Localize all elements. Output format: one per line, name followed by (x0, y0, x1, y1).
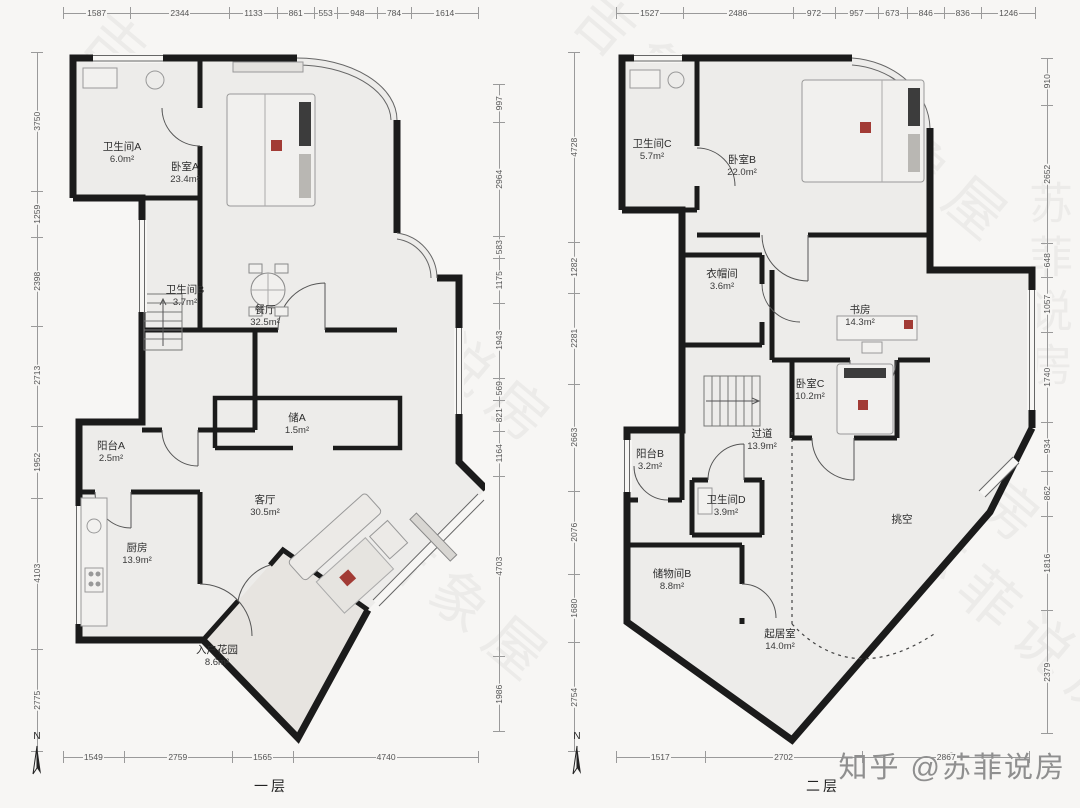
dimension-segment: 1175 (492, 258, 506, 303)
room-name: 阳台B (636, 448, 664, 461)
room-label: 卫生间D 3.9m² (706, 494, 745, 518)
floor-plan-page: 吉象屋苏菲说房吉象屋苏菲说房吉象屋苏菲说房吉象屋苏菲说房 苏菲说房 158723… (0, 0, 1080, 808)
dimension-segment: 4728 (567, 52, 581, 242)
room-area: 8.6m² (196, 657, 238, 668)
dimension-segment: 972 (793, 6, 836, 20)
dimension-segment: 1943 (492, 303, 506, 377)
furniture-bed-C (837, 364, 893, 434)
room-name: 卧室C (795, 378, 825, 391)
dimension-segment: 673 (878, 6, 908, 20)
room-name: 入户花园 (196, 644, 238, 657)
room-area: 6.0m² (103, 154, 142, 165)
dimension-segment: 4740 (293, 750, 479, 764)
room-label: 入户花园 8.6m² (196, 644, 238, 668)
room-name: 厨房 (122, 542, 152, 555)
room-name: 衣帽间 (706, 268, 738, 281)
dimension-segment: 3750 (30, 52, 44, 191)
furniture-bed-B (802, 80, 924, 182)
dimension-segment: 2486 (683, 6, 792, 20)
room-label: 储A 1.5m² (285, 412, 309, 436)
room-name: 储物间B (653, 568, 692, 581)
dimension-segment: 1680 (567, 574, 581, 641)
room-label: 阳台B 3.2m² (636, 448, 664, 472)
dimension-segment: 861 (277, 6, 313, 20)
north-arrow-right: N (568, 732, 586, 778)
dimension-segment: 2398 (30, 237, 44, 326)
room-label: 衣帽间 3.6m² (706, 268, 738, 292)
room-name: 阳台A (97, 440, 125, 453)
room-name: 挑空 (892, 514, 913, 527)
room-area: 13.9m² (747, 441, 777, 452)
dimension-segment: 910 (1040, 58, 1054, 105)
room-name: 卫生间B (166, 284, 205, 297)
room-name: 卧室A (170, 161, 200, 174)
dimension-segment: 2663 (567, 384, 581, 491)
dimension-segment: 2076 (567, 491, 581, 574)
dimension-segment: 4703 (492, 476, 506, 656)
floor-plan-first-floor-drawing (65, 28, 485, 746)
dimension-segment: 1246 (981, 6, 1036, 20)
room-area: 3.7m² (166, 297, 205, 308)
dimension-segment: 648 (1040, 243, 1054, 277)
dimension-segment: 1565 (232, 750, 293, 764)
dim-chain-left-bottom: 1549275915654740 (63, 750, 479, 764)
room-area: 32.5m² (250, 317, 280, 328)
room-area: 14.0m² (764, 641, 796, 652)
dimension-segment: 2281 (567, 293, 581, 384)
north-label: N (573, 731, 580, 742)
dimension-segment: 821 (492, 400, 506, 431)
north-arrow-icon (31, 744, 43, 778)
dimension-segment: 846 (907, 6, 944, 20)
room-area: 3.9m² (706, 507, 745, 518)
room-label: 储物间B 8.8m² (653, 568, 692, 592)
dimension-segment: 2379 (1040, 610, 1054, 734)
room-area: 8.8m² (653, 581, 692, 592)
room-name: 卫生间D (706, 494, 745, 507)
dimension-segment: 934 (1040, 422, 1054, 471)
dimension-segment: 583 (492, 236, 506, 258)
room-area: 5.7m² (632, 151, 671, 162)
room-label: 卧室C 10.2m² (795, 378, 825, 402)
dimension-segment: 1259 (30, 191, 44, 238)
room-name: 卫生间C (632, 138, 671, 151)
dimension-segment: 1986 (492, 656, 506, 732)
dimension-segment: 2713 (30, 326, 44, 426)
dimension-segment: 1614 (411, 6, 479, 20)
room-area: 3.2m² (636, 461, 664, 472)
room-area: 23.4m² (170, 174, 200, 185)
dimension-segment: 1057 (1040, 277, 1054, 332)
dim-chain-right-right: 91026526481057174093486218162379 (1040, 58, 1054, 734)
dimension-segment: 1740 (1040, 332, 1054, 423)
dimension-segment: 2759 (124, 750, 232, 764)
room-area: 1.5m² (285, 425, 309, 436)
dimension-segment: 4103 (30, 498, 44, 650)
room-label: 挑空 (892, 514, 913, 527)
room-area: 22.0m² (727, 167, 757, 178)
dimension-segment: 997 (492, 84, 506, 122)
zhihu-credit-watermark: 知乎 @苏菲说房 (839, 744, 1067, 786)
dimension-segment: 2964 (492, 122, 506, 236)
north-label: N (33, 731, 40, 742)
dimension-segment: 553 (314, 6, 337, 20)
floor-plan-second-floor-drawing (612, 28, 1040, 746)
room-label: 书房 14.3m² (845, 304, 875, 328)
dimension-segment: 569 (492, 378, 506, 400)
furniture-kitchen-counter (81, 498, 107, 626)
room-name: 客厅 (250, 494, 280, 507)
dim-chain-left-right: 997296458311751943569821116447031986 (492, 84, 506, 732)
dimension-segment: 2344 (130, 6, 229, 20)
dimension-segment: 1587 (63, 6, 130, 20)
room-area: 14.3m² (845, 317, 875, 328)
room-label: 过道 13.9m² (747, 428, 777, 452)
room-label: 厨房 13.9m² (122, 542, 152, 566)
room-name: 卧室B (727, 154, 757, 167)
dimension-segment: 1282 (567, 242, 581, 293)
room-name: 起居室 (764, 628, 796, 641)
room-name: 书房 (845, 304, 875, 317)
room-area: 10.2m² (795, 391, 825, 402)
dimension-segment: 836 (944, 6, 981, 20)
dim-chain-right-left: 4728128222812663207616802754 (567, 52, 581, 752)
dimension-segment: 948 (337, 6, 377, 20)
dimension-segment: 2652 (1040, 105, 1054, 243)
room-area: 13.9m² (122, 555, 152, 566)
first-floor-title: 一层 (63, 776, 479, 796)
dimension-segment: 1517 (616, 750, 705, 764)
room-label: 客厅 30.5m² (250, 494, 280, 518)
dim-chain-right-top: 152724869729576738468361246 (616, 6, 1036, 20)
room-area: 3.6m² (706, 281, 738, 292)
north-arrow-icon (571, 744, 583, 778)
dimension-segment: 1816 (1040, 516, 1054, 610)
dimension-segment: 1952 (30, 426, 44, 498)
room-label: 阳台A 2.5m² (97, 440, 125, 464)
dimension-segment: 1164 (492, 431, 506, 476)
dimension-segment: 957 (835, 6, 877, 20)
dimension-segment: 862 (1040, 471, 1054, 516)
dimension-segment: 1133 (229, 6, 277, 20)
room-label: 起居室 14.0m² (764, 628, 796, 652)
room-label: 餐厅 32.5m² (250, 304, 280, 328)
room-label: 卫生间C 5.7m² (632, 138, 671, 162)
room-area: 30.5m² (250, 507, 280, 518)
dim-chain-left-top: 1587234411338615539487841614 (63, 6, 479, 20)
room-label: 卫生间B 3.7m² (166, 284, 205, 308)
room-label: 卧室B 22.0m² (727, 154, 757, 178)
room-area: 2.5m² (97, 453, 125, 464)
room-label: 卫生间A 6.0m² (103, 141, 142, 165)
room-name: 餐厅 (250, 304, 280, 317)
room-label: 卧室A 23.4m² (170, 161, 200, 185)
north-arrow-left: N (28, 732, 46, 778)
dimension-segment: 1527 (616, 6, 683, 20)
dimension-segment: 1549 (63, 750, 124, 764)
dim-chain-left-left: 3750125923982713195241032775 (30, 52, 44, 752)
floor-plan-first-floor: 卫生间A 6.0m² 卧室A 23.4m² 卫生间B 3.7m² 餐厅 32.5… (65, 28, 485, 746)
room-name: 过道 (747, 428, 777, 441)
room-name: 储A (285, 412, 309, 425)
floor-plan-second-floor: 卫生间C 5.7m² 卧室B 22.0m² 衣帽间 3.6m² 书房 14.3m… (612, 28, 1040, 746)
dimension-segment: 784 (377, 6, 410, 20)
room-name: 卫生间A (103, 141, 142, 154)
